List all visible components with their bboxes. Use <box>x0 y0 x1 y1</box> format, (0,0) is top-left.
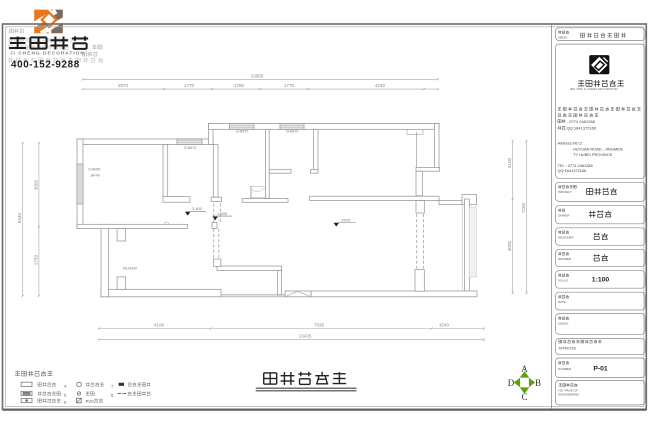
svg-text:2.400: 2.400 <box>192 206 203 211</box>
svg-text:PVC: PVC <box>86 399 95 404</box>
svg-text:Address:NO.2: Address:NO.2 <box>558 141 582 146</box>
svg-text:DATE: DATE <box>558 300 566 304</box>
svg-text:400-152-9288: 400-152-9288 <box>11 60 80 71</box>
svg-text:DRAWER: DRAWER <box>558 257 572 261</box>
svg-text:2070: 2070 <box>342 217 352 222</box>
svg-text:OWNER: OWNER <box>558 214 570 218</box>
svg-text:JB+40: JB+40 <box>90 174 100 178</box>
svg-text:SCALE: SCALE <box>558 279 568 283</box>
svg-text:4000: 4000 <box>507 240 512 251</box>
svg-text:7.: 7. <box>111 383 114 388</box>
svg-text:QQ:1641372166: QQ:1641372166 <box>558 168 587 173</box>
svg-text:M142420: M142420 <box>123 266 137 270</box>
svg-text:7250: 7250 <box>521 202 526 213</box>
svg-text:CHECK: CHECK <box>558 322 569 326</box>
svg-text:JI CHENG DECORATION: JI CHENG DECORATION <box>10 51 85 57</box>
svg-text:4240: 4240 <box>375 83 386 88</box>
svg-text:MEMO: MEMO <box>558 36 568 40</box>
svg-text:TY HUBEI PROVINCE: TY HUBEI PROVINCE <box>573 152 613 157</box>
svg-text:B: B <box>535 378 541 388</box>
svg-text:CH6450: CH6450 <box>88 168 101 172</box>
svg-text:6.: 6. <box>64 400 67 405</box>
svg-text:1770: 1770 <box>184 83 195 88</box>
svg-text:7335: 7335 <box>314 322 325 327</box>
svg-text:8.: 8. <box>111 392 114 397</box>
svg-text:A: A <box>521 364 528 374</box>
svg-text:1.500: 1.500 <box>217 211 228 216</box>
svg-text:: 0774 2481288: : 0774 2481288 <box>567 119 596 124</box>
svg-text:3050: 3050 <box>33 179 38 190</box>
svg-text:C: C <box>521 392 527 402</box>
svg-text:D: D <box>508 378 515 388</box>
svg-text:1:100: 1:100 <box>592 276 610 283</box>
svg-text:4.: 4. <box>64 383 67 388</box>
svg-text:QQ:1641372166: QQ:1641372166 <box>567 126 597 131</box>
svg-text:BEI JING JI CHENG DECORATION: BEI JING JI CHENG DECORATION <box>571 87 618 91</box>
svg-text:13055: 13055 <box>251 73 264 78</box>
svg-text:5.: 5. <box>64 392 67 397</box>
svg-text:CH6470: CH6470 <box>184 146 197 150</box>
svg-text:CH6470: CH6470 <box>286 130 299 134</box>
svg-text:ENGINEERING: ENGINEERING <box>559 393 581 397</box>
svg-text:2750: 2750 <box>33 254 38 265</box>
svg-text:TEL : 0774 2481288: TEL : 0774 2481288 <box>558 163 593 168</box>
svg-text:2970: 2970 <box>118 83 129 88</box>
svg-text:DESIGNER: DESIGNER <box>558 236 575 240</box>
svg-text:NUMBER: NUMBER <box>558 367 572 371</box>
svg-text:PROJECT: PROJECT <box>558 190 572 194</box>
svg-text:P-01: P-01 <box>593 365 608 372</box>
svg-text:APPROVED: APPROVED <box>559 346 577 350</box>
svg-text:CH6470: CH6470 <box>236 130 249 134</box>
svg-text:1540: 1540 <box>439 322 450 327</box>
svg-text:6440: 6440 <box>17 212 22 223</box>
svg-text:1780: 1780 <box>234 83 245 88</box>
svg-text:13435: 13435 <box>299 334 312 339</box>
svg-text:4100: 4100 <box>154 322 165 327</box>
svg-text:3100: 3100 <box>507 157 512 168</box>
svg-text:1770: 1770 <box>284 83 295 88</box>
svg-text:HUYUAN ROAD , JINGMEN: HUYUAN ROAD , JINGMEN <box>573 147 623 152</box>
